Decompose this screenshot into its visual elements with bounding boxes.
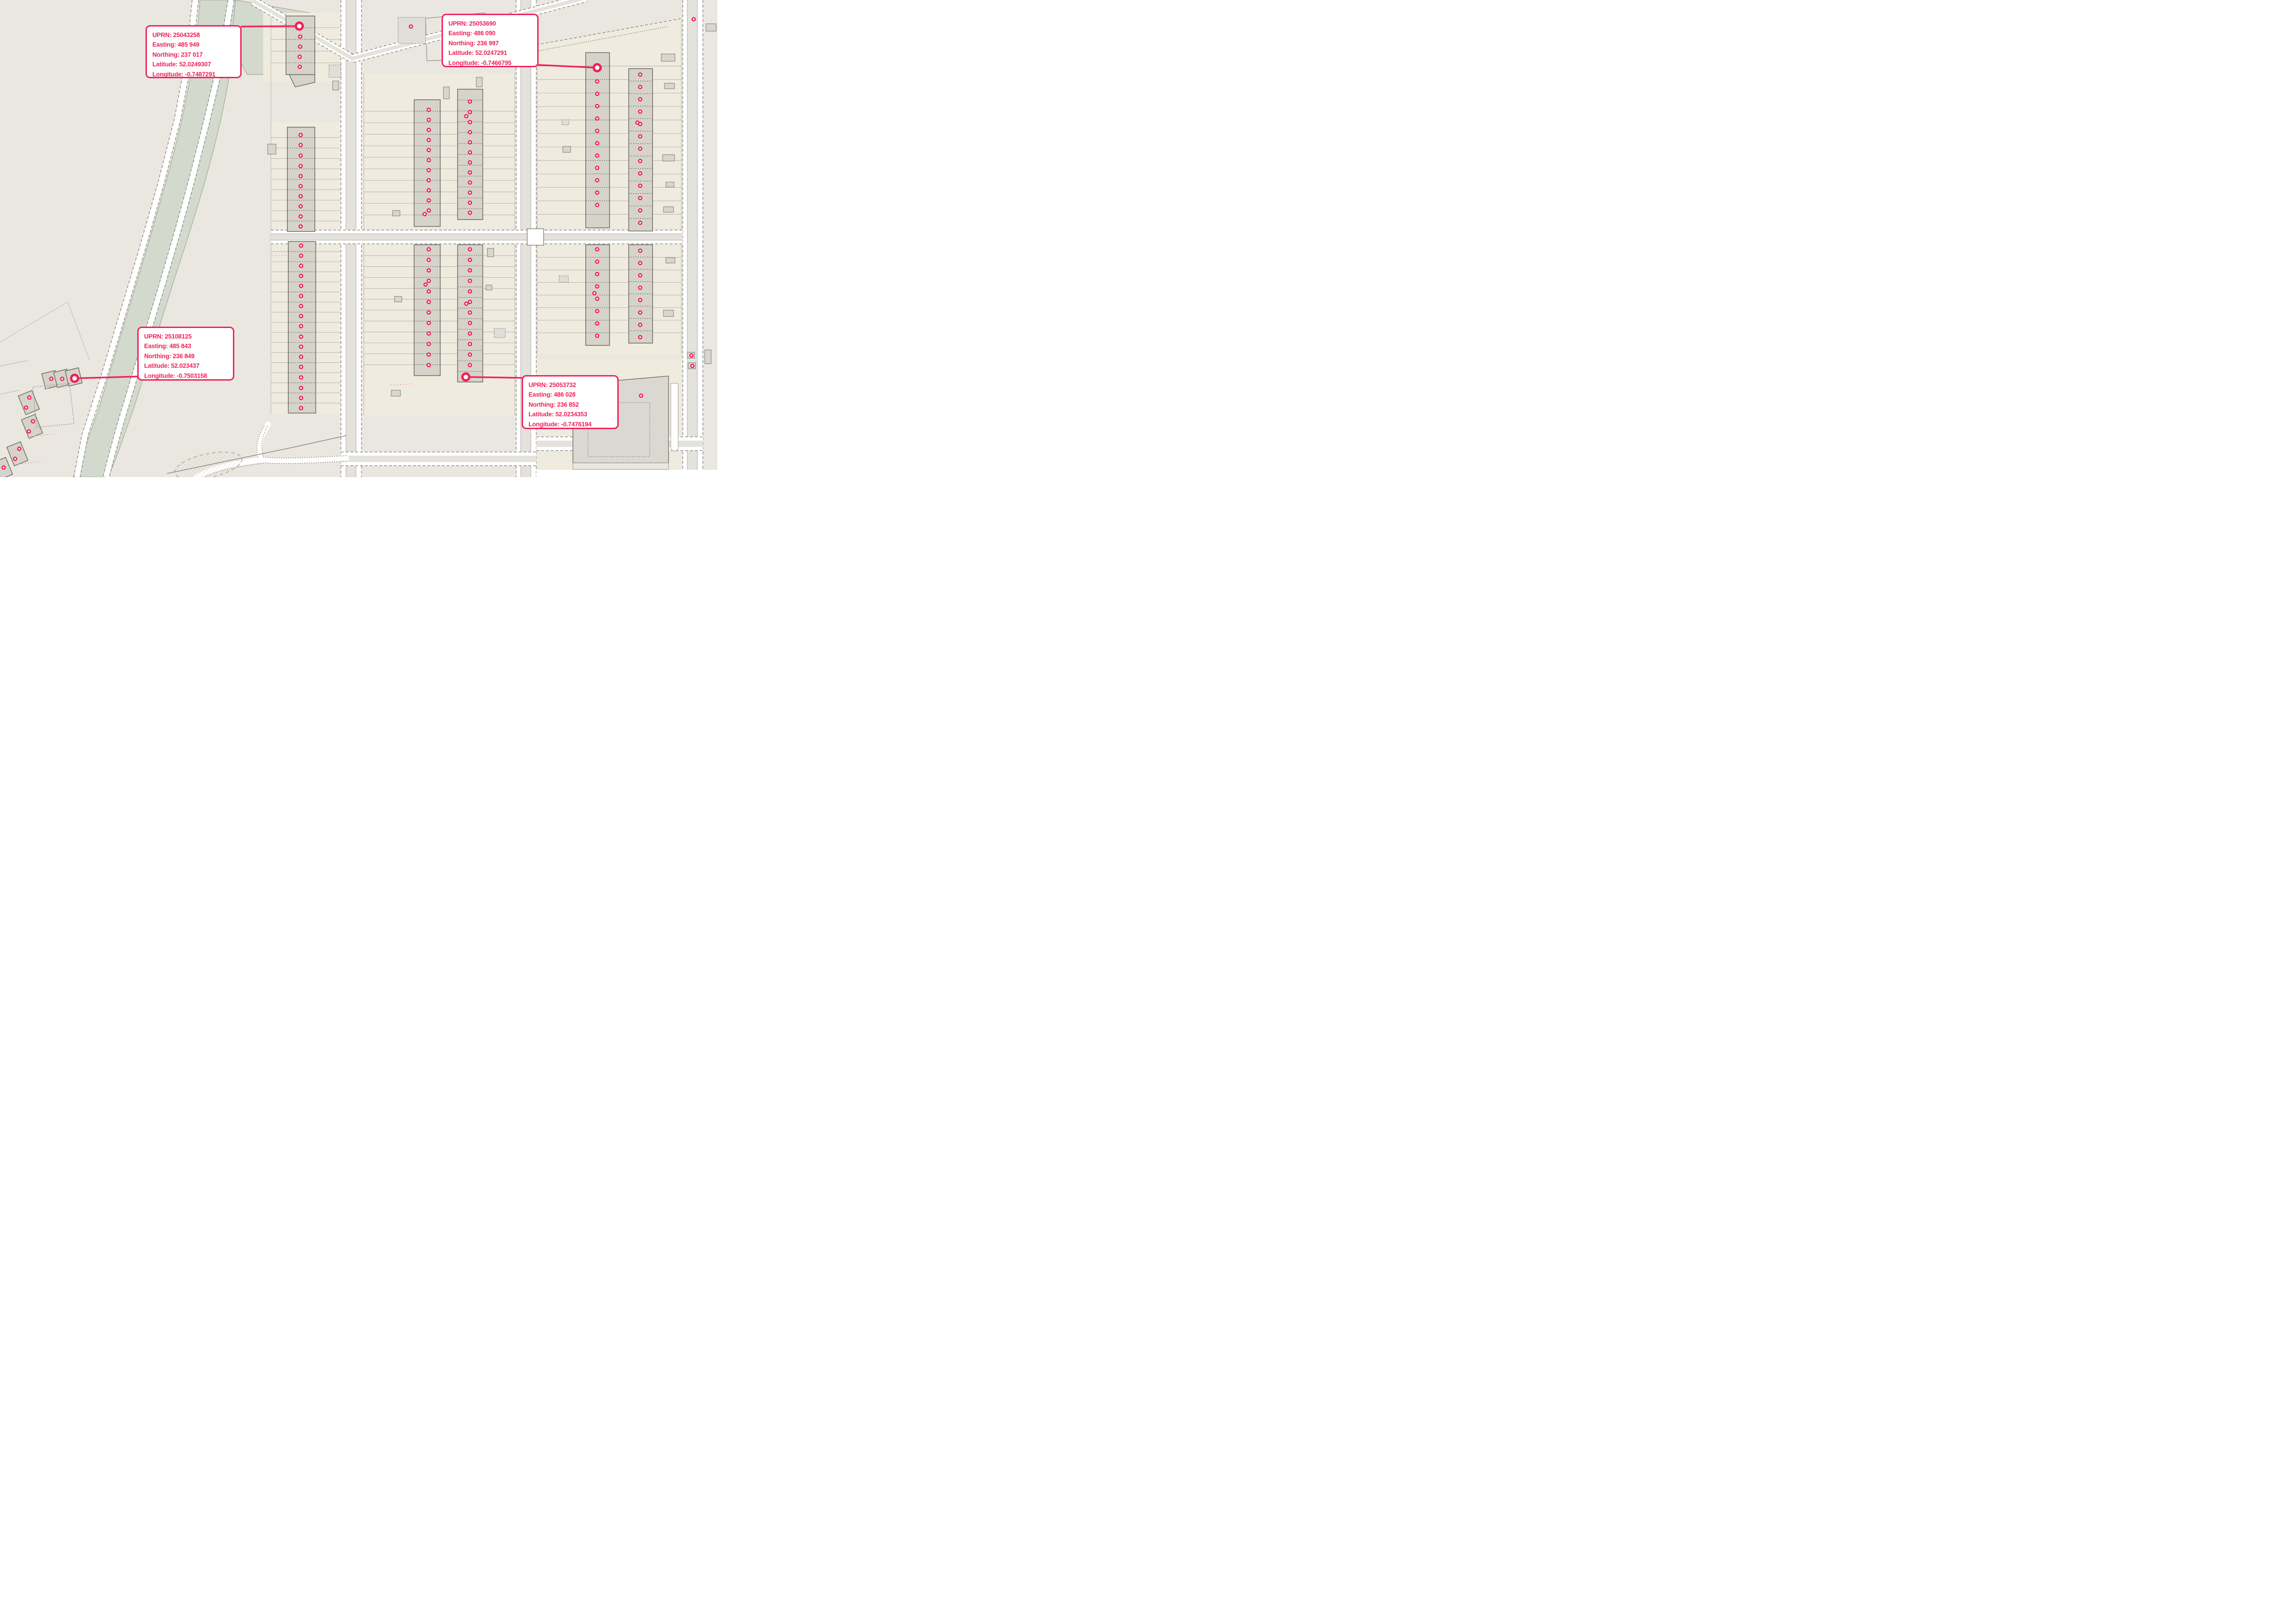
uprn-marker[interactable]: [427, 269, 431, 272]
callout-field-easting: Easting: 485 949: [152, 40, 235, 49]
uprn-marker[interactable]: [593, 292, 596, 295]
callout-field-longitude: Longitude: -0.7466795: [448, 58, 532, 68]
uprn-marker[interactable]: [61, 377, 64, 381]
callout-leader-line: [242, 26, 299, 27]
uprn-marker[interactable]: [427, 139, 431, 142]
uprn-marker[interactable]: [469, 100, 472, 103]
uprn-marker[interactable]: [639, 299, 642, 302]
uprn-marker[interactable]: [2, 466, 5, 469]
uprn-marker[interactable]: [469, 290, 472, 293]
uprn-marker[interactable]: [427, 189, 431, 192]
callout-field-latitude: Latitude: 52.0234353: [529, 409, 612, 419]
uprn-marker[interactable]: [300, 387, 303, 390]
uprn-marker[interactable]: [18, 447, 21, 451]
callout-field-uprn: UPRN: 25053690: [448, 19, 532, 28]
uprn-marker[interactable]: [469, 141, 472, 144]
uprn-marker[interactable]: [596, 92, 599, 96]
uprn-marker[interactable]: [423, 213, 426, 216]
uprn-marker[interactable]: [639, 249, 642, 253]
uprn-marker[interactable]: [469, 201, 472, 204]
uprn-marker[interactable]: [469, 171, 472, 174]
uprn-marker[interactable]: [300, 325, 303, 328]
uprn-marker[interactable]: [639, 172, 642, 175]
uprn-callout: UPRN: 25053690Easting: 486 090Northing: …: [442, 14, 539, 67]
uprn-marker[interactable]: [639, 209, 642, 212]
uprn-marker[interactable]: [300, 345, 303, 349]
uprn-marker[interactable]: [27, 430, 31, 433]
uprn-marker[interactable]: [639, 160, 642, 163]
uprn-marker[interactable]: [596, 322, 599, 325]
uprn-marker[interactable]: [639, 323, 642, 327]
uprn-marker[interactable]: [427, 248, 431, 251]
uprn-marker[interactable]: [469, 111, 472, 114]
uprn-marker[interactable]: [639, 147, 642, 151]
uprn-marker[interactable]: [299, 225, 302, 228]
uprn-marker[interactable]: [639, 274, 642, 277]
uprn-marker[interactable]: [469, 280, 472, 283]
uprn-marker[interactable]: [427, 159, 431, 162]
uprn-marker[interactable]: [596, 154, 599, 157]
uprn-marker[interactable]: [298, 55, 302, 59]
uprn-marker[interactable]: [596, 117, 599, 120]
uprn-marker[interactable]: [28, 396, 31, 399]
uprn-marker[interactable]: [427, 209, 431, 212]
uprn-marker[interactable]: [639, 262, 642, 265]
uprn-marker[interactable]: [690, 354, 693, 357]
uprn-callout: UPRN: 25108125Easting: 485 843Northing: …: [137, 327, 234, 381]
uprn-marker[interactable]: [300, 264, 303, 268]
uprn-marker[interactable]: [596, 310, 599, 313]
callout-field-uprn: UPRN: 25043258: [152, 30, 235, 40]
uprn-marker[interactable]: [427, 199, 431, 202]
uprn-marker[interactable]: [300, 376, 303, 379]
uprn-marker[interactable]: [50, 377, 53, 381]
callout-field-longitude: Longitude: -0.7487291: [152, 70, 235, 79]
uprn-marker[interactable]: [300, 315, 303, 318]
uprn-marker[interactable]: [596, 285, 599, 288]
uprn-marker[interactable]: [427, 301, 431, 304]
uprn-marker[interactable]: [469, 121, 472, 124]
uprn-marker[interactable]: [300, 244, 303, 247]
uprn-marker[interactable]: [427, 332, 431, 335]
uprn-marker[interactable]: [469, 311, 472, 314]
uprn-marker[interactable]: [427, 290, 431, 293]
junction-structure: [527, 229, 544, 245]
uprn-marker[interactable]: [300, 335, 303, 339]
uprn-marker[interactable]: [299, 144, 302, 147]
uprn-marker[interactable]: [596, 191, 599, 194]
callout-field-easting: Easting: 485 843: [144, 341, 227, 351]
uprn-marker[interactable]: [299, 195, 302, 198]
uprn-marker-highlighted[interactable]: [594, 65, 601, 71]
uprn-marker[interactable]: [596, 179, 599, 182]
callout-field-longitude: Longitude: -0.7476194: [529, 419, 612, 429]
uprn-marker[interactable]: [300, 295, 303, 298]
uprn-marker[interactable]: [300, 397, 303, 400]
uprn-marker[interactable]: [427, 364, 431, 367]
uprn-marker[interactable]: [639, 73, 642, 76]
uprn-marker[interactable]: [469, 364, 472, 367]
uprn-marker[interactable]: [596, 248, 599, 251]
uprn-marker[interactable]: [299, 154, 302, 157]
uprn-marker[interactable]: [427, 322, 431, 325]
uprn-marker[interactable]: [427, 169, 431, 172]
uprn-marker[interactable]: [596, 273, 599, 276]
uprn-marker[interactable]: [299, 134, 302, 137]
uprn-marker[interactable]: [640, 394, 643, 398]
uprn-marker[interactable]: [469, 332, 472, 335]
uprn-marker[interactable]: [596, 167, 599, 170]
uprn-marker[interactable]: [32, 420, 35, 423]
uprn-marker[interactable]: [299, 185, 302, 188]
uprn-marker[interactable]: [596, 142, 599, 145]
callout-field-easting: Easting: 486 090: [448, 28, 532, 38]
uprn-marker[interactable]: [639, 86, 642, 89]
uprn-marker[interactable]: [427, 129, 431, 132]
uprn-marker[interactable]: [469, 322, 472, 325]
callout-field-latitude: Latitude: 52.0247291: [448, 48, 532, 58]
callout-leader-line: [466, 377, 522, 378]
terrace-row[interactable]: [586, 53, 610, 228]
uprn-marker[interactable]: [469, 181, 472, 184]
uprn-marker[interactable]: [639, 221, 642, 225]
uprn-marker[interactable]: [596, 129, 599, 133]
uprn-marker[interactable]: [300, 274, 303, 278]
uprn-marker[interactable]: [300, 285, 303, 288]
uprn-marker[interactable]: [469, 161, 472, 164]
uprn-marker[interactable]: [427, 118, 431, 122]
uprn-marker[interactable]: [639, 123, 642, 126]
uprn-marker[interactable]: [427, 179, 431, 182]
callout-field-northing: Northing: 236 997: [448, 38, 532, 48]
uprn-marker-highlighted[interactable]: [296, 23, 303, 30]
callout-field-northing: Northing: 236 852: [529, 400, 612, 409]
callout-field-northing: Northing: 236 849: [144, 351, 227, 361]
uprn-marker[interactable]: [465, 302, 468, 306]
uprn-marker[interactable]: [469, 151, 472, 154]
uprn-marker[interactable]: [639, 184, 642, 188]
uprn-marker[interactable]: [300, 355, 303, 359]
uprn-marker[interactable]: [596, 105, 599, 108]
uprn-marker[interactable]: [596, 334, 599, 338]
uprn-marker[interactable]: [692, 18, 696, 21]
uprn-marker[interactable]: [469, 258, 472, 262]
uprn-marker[interactable]: [299, 205, 302, 208]
uprn-marker[interactable]: [469, 131, 472, 134]
uprn-marker[interactable]: [300, 366, 303, 369]
uprn-marker[interactable]: [639, 286, 642, 290]
uprn-marker[interactable]: [299, 215, 302, 218]
uprn-marker[interactable]: [465, 115, 468, 118]
uprn-marker[interactable]: [469, 343, 472, 346]
callout-field-latitude: Latitude: 52.023437: [144, 361, 227, 371]
uprn-callout: UPRN: 25053732Easting: 486 028Northing: …: [522, 375, 619, 429]
uprn-marker[interactable]: [427, 343, 431, 346]
uprn-marker[interactable]: [427, 108, 431, 112]
uprn-marker[interactable]: [427, 280, 431, 283]
uprn-marker[interactable]: [299, 165, 302, 168]
uprn-marker[interactable]: [427, 311, 431, 314]
uprn-marker[interactable]: [596, 297, 599, 301]
uprn-marker[interactable]: [596, 80, 599, 83]
callout-field-longitude: Longitude: -0.7503158: [144, 371, 227, 381]
uprn-marker[interactable]: [299, 175, 302, 178]
callout-field-uprn: UPRN: 25053732: [529, 380, 612, 390]
uprn-marker[interactable]: [300, 254, 303, 258]
uprn-marker-highlighted[interactable]: [71, 375, 78, 382]
uprn-marker[interactable]: [639, 135, 642, 138]
uprn-marker[interactable]: [299, 35, 302, 38]
callout-field-latitude: Latitude: 52.0249307: [152, 59, 235, 69]
uprn-marker[interactable]: [469, 248, 472, 251]
uprn-marker[interactable]: [469, 301, 472, 304]
uprn-callout: UPRN: 25043258Easting: 485 949Northing: …: [146, 25, 242, 78]
uprn-marker[interactable]: [691, 365, 694, 368]
uprn-marker[interactable]: [300, 407, 303, 410]
uprn-marker[interactable]: [299, 45, 302, 48]
uprn-marker[interactable]: [596, 260, 599, 263]
uprn-marker[interactable]: [300, 305, 303, 308]
map-stage: UPRN: 25043258Easting: 485 949Northing: …: [0, 0, 718, 477]
uprn-marker[interactable]: [469, 353, 472, 356]
callout-field-easting: Easting: 486 028: [529, 390, 612, 399]
uprn-marker[interactable]: [639, 336, 642, 339]
uprn-marker[interactable]: [427, 149, 431, 152]
uprn-marker[interactable]: [410, 25, 413, 28]
uprn-marker[interactable]: [639, 110, 642, 113]
uprn-marker[interactable]: [298, 65, 302, 69]
callout-field-northing: Northing: 237 017: [152, 50, 235, 59]
uprn-marker[interactable]: [469, 191, 472, 194]
uprn-marker[interactable]: [596, 204, 599, 207]
uprn-marker[interactable]: [424, 283, 427, 286]
uprn-marker[interactable]: [639, 197, 642, 200]
callout-field-uprn: UPRN: 25108125: [144, 332, 227, 341]
uprn-marker[interactable]: [639, 98, 642, 101]
uprn-marker[interactable]: [427, 353, 431, 356]
uprn-marker[interactable]: [469, 269, 472, 272]
uprn-marker[interactable]: [14, 457, 17, 461]
uprn-marker[interactable]: [469, 211, 472, 215]
uprn-marker[interactable]: [639, 311, 642, 314]
uprn-marker[interactable]: [427, 258, 431, 262]
uprn-marker-highlighted[interactable]: [463, 374, 469, 381]
uprn-marker[interactable]: [25, 406, 28, 409]
